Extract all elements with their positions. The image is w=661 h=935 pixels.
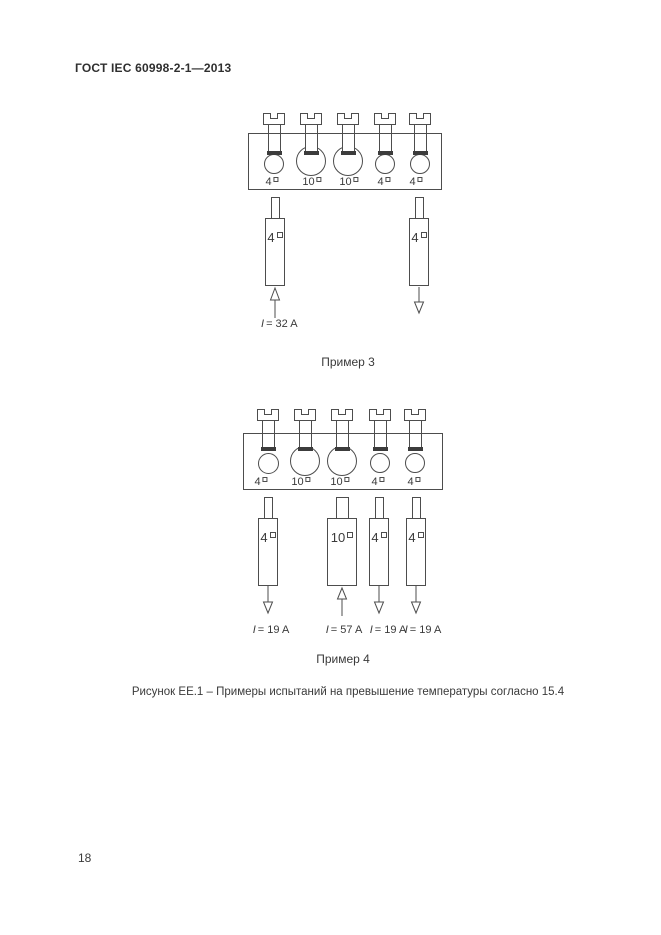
terminal-size-value: 4 (265, 176, 271, 188)
example4-caption: Пример 4 (243, 652, 443, 666)
conductor-size-label: 4 (370, 530, 388, 545)
conductor-bare-end (264, 497, 273, 518)
current-symbol: I (261, 318, 264, 330)
clamping-screw (293, 409, 317, 451)
conductor-size-label: 4 (407, 530, 425, 545)
conductor-size-value: 10 (331, 530, 345, 545)
screw-slot-icon (301, 409, 309, 415)
terminal-size-label: 10 (339, 176, 358, 188)
screw-head (263, 113, 285, 125)
screw-tip (378, 151, 393, 155)
conductor-size-value: 4 (408, 530, 415, 545)
clamping-screw (368, 409, 392, 451)
screw-slot-icon (270, 113, 278, 119)
current-symbol: I (326, 624, 329, 636)
mm2-square-icon (317, 177, 322, 182)
conductor-size-value: 4 (371, 530, 378, 545)
current-label: I= 32 A (261, 318, 298, 330)
terminal-size-value: 4 (409, 176, 415, 188)
screw-tip (267, 151, 282, 155)
conductor-bare-end (271, 197, 280, 218)
mm2-square-icon (381, 532, 387, 538)
current-direction-down-arrow (408, 586, 424, 614)
conductor-size-label: 4 (410, 230, 428, 245)
figure-caption: Рисунок ЕЕ.1 – Примеры испытаний на прев… (38, 686, 658, 698)
terminal-size-label: 4 (409, 176, 422, 188)
terminal-hole-4mm (410, 154, 430, 174)
terminal-size-label: 10 (291, 476, 310, 488)
screw-slot-icon (411, 409, 419, 415)
mm2-square-icon (263, 477, 268, 482)
conductor-bare-end (415, 197, 424, 218)
current-direction-down-arrow (371, 586, 387, 614)
current-direction-down-arrow (411, 287, 427, 314)
screw-head (404, 409, 426, 421)
terminal-size-label: 4 (407, 476, 420, 488)
screw-tip (373, 447, 388, 451)
current-label: I= 19 A (405, 624, 442, 636)
terminal-size-value: 4 (371, 476, 377, 488)
conductor-4mm: 4 (258, 518, 278, 586)
conductor-bare-end (336, 497, 349, 518)
screw-head (257, 409, 279, 421)
screw-slot-icon (381, 113, 389, 119)
screw-slot-icon (376, 409, 384, 415)
conductor-4mm: 4 (265, 218, 285, 286)
current-direction-up-arrow (267, 287, 283, 318)
screw-head (294, 409, 316, 421)
terminal-hole-4mm (375, 154, 395, 174)
screw-head (300, 113, 322, 125)
current-value: = 19 A (258, 624, 290, 636)
screw-slot-icon (338, 409, 346, 415)
screw-shaft (379, 125, 392, 151)
conductor-4mm: 4 (369, 518, 389, 586)
mm2-square-icon (306, 477, 311, 482)
terminal-size-value: 4 (407, 476, 413, 488)
conductor-bare-end (375, 497, 384, 518)
document-page: ГОСТ IEC 60998-2-1—2013 (0, 0, 661, 935)
current-symbol: I (370, 624, 373, 636)
screw-head (369, 409, 391, 421)
screw-shaft (305, 125, 318, 151)
mm2-square-icon (347, 532, 353, 538)
current-value: = 19 A (375, 624, 407, 636)
current-label: I= 19 A (253, 624, 290, 636)
standard-designation: ГОСТ IEC 60998-2-1—2013 (75, 61, 231, 75)
terminal-size-label: 4 (265, 176, 278, 188)
mm2-square-icon (270, 532, 276, 538)
screw-tip (261, 447, 276, 451)
conductor-bare-end (412, 497, 421, 518)
current-label: I= 57 A (326, 624, 363, 636)
clamping-screw (373, 113, 397, 155)
block-top-edge (248, 133, 442, 134)
terminal-hole-4mm (258, 453, 279, 474)
clamping-screw (330, 409, 354, 451)
conductor-size-label: 4 (266, 230, 284, 245)
mm2-square-icon (418, 177, 423, 182)
screw-slot-icon (416, 113, 424, 119)
screw-tip (408, 447, 423, 451)
screw-head (337, 113, 359, 125)
current-value: = 57 A (331, 624, 363, 636)
screw-head (331, 409, 353, 421)
mm2-square-icon (421, 232, 427, 238)
mm2-square-icon (386, 177, 391, 182)
terminal-size-value: 10 (302, 176, 314, 188)
terminal-hole-4mm (370, 453, 390, 473)
conductor-10mm: 10 (327, 518, 357, 586)
screw-shaft (262, 421, 275, 447)
screw-shaft (336, 421, 349, 447)
terminal-hole-4mm (405, 453, 425, 473)
screw-shaft (374, 421, 387, 447)
current-label: I= 19 A (370, 624, 407, 636)
terminal-size-value: 4 (377, 176, 383, 188)
clamping-screw (336, 113, 360, 155)
mm2-square-icon (380, 477, 385, 482)
screw-slot-icon (344, 113, 352, 119)
mm2-square-icon (418, 532, 424, 538)
screw-shaft (342, 125, 355, 151)
screw-shaft (268, 125, 281, 151)
conductor-size-label: 10 (328, 530, 356, 545)
screw-tip (335, 447, 350, 451)
current-direction-down-arrow (260, 586, 276, 614)
terminal-size-value: 10 (291, 476, 303, 488)
terminal-size-label: 4 (254, 476, 267, 488)
conductor-size-value: 4 (411, 230, 418, 245)
screw-head (374, 113, 396, 125)
screw-slot-icon (264, 409, 272, 415)
screw-tip (413, 151, 428, 155)
conductor-4mm: 4 (409, 218, 429, 286)
current-symbol: I (253, 624, 256, 636)
terminal-size-label: 4 (377, 176, 390, 188)
current-value: = 19 A (410, 624, 442, 636)
screw-tip (304, 151, 319, 155)
mm2-square-icon (345, 477, 350, 482)
screw-tip (341, 151, 356, 155)
example3-caption: Пример 3 (248, 355, 448, 369)
screw-shaft (409, 421, 422, 447)
current-symbol: I (405, 624, 408, 636)
clamping-screw (408, 113, 432, 155)
page-number: 18 (78, 851, 91, 865)
terminal-size-label: 10 (330, 476, 349, 488)
terminal-size-label: 4 (371, 476, 384, 488)
terminal-size-label: 10 (302, 176, 321, 188)
clamping-screw (262, 113, 286, 155)
terminal-size-value: 4 (254, 476, 260, 488)
mm2-square-icon (354, 177, 359, 182)
terminal-size-value: 10 (330, 476, 342, 488)
terminal-size-value: 10 (339, 176, 351, 188)
screw-shaft (414, 125, 427, 151)
block-top-edge (243, 433, 443, 434)
mm2-square-icon (416, 477, 421, 482)
conductor-size-label: 4 (259, 530, 277, 545)
mm2-square-icon (277, 232, 283, 238)
screw-shaft (299, 421, 312, 447)
clamping-screw (403, 409, 427, 451)
clamping-screw (256, 409, 280, 451)
screw-slot-icon (307, 113, 315, 119)
mm2-square-icon (274, 177, 279, 182)
screw-tip (298, 447, 313, 451)
conductor-4mm: 4 (406, 518, 426, 586)
screw-head (409, 113, 431, 125)
current-value: = 32 A (266, 318, 298, 330)
conductor-size-value: 4 (260, 530, 267, 545)
conductor-size-value: 4 (267, 230, 274, 245)
terminal-hole-4mm (264, 154, 284, 174)
current-direction-up-arrow (334, 587, 350, 616)
clamping-screw (299, 113, 323, 155)
